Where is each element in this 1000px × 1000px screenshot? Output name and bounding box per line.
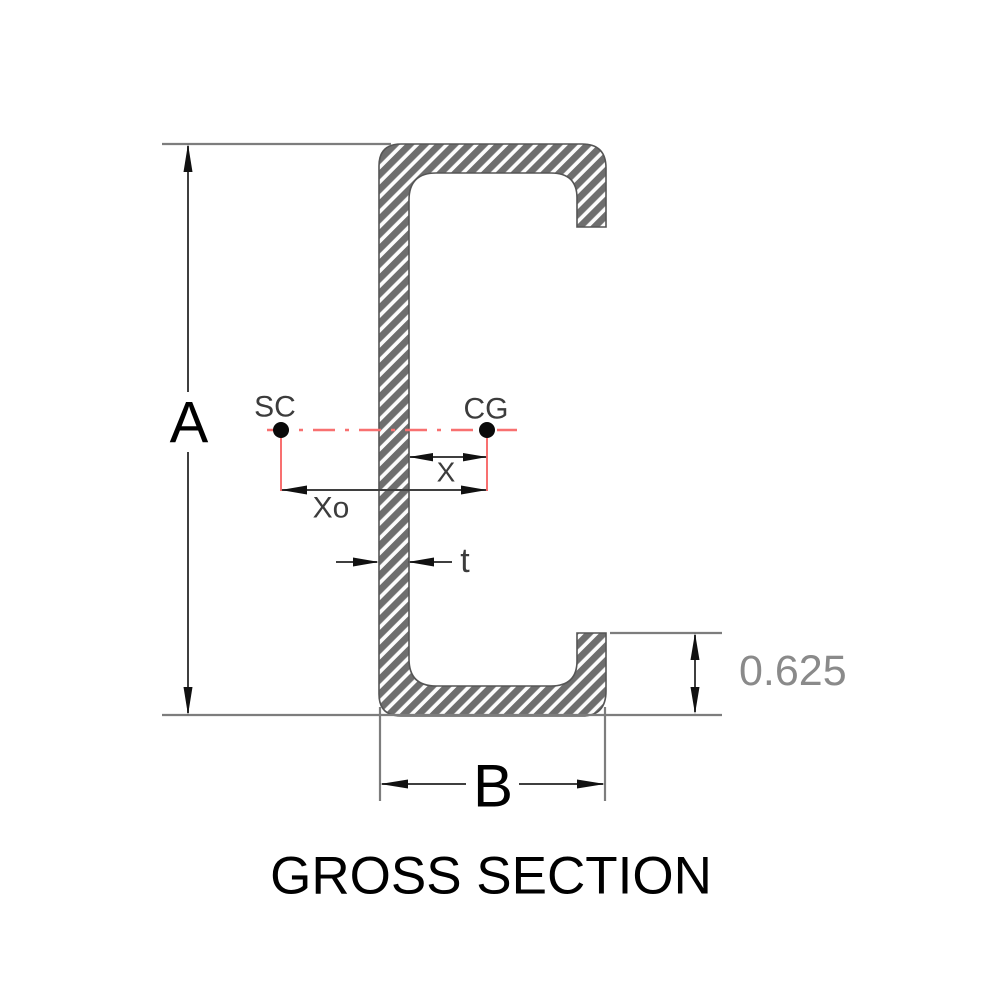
arrowhead-sc-offset-right-icon xyxy=(461,486,487,495)
center-of-gravity-label: CG xyxy=(464,393,509,426)
arrowhead-cg-offset-right-icon xyxy=(463,453,487,461)
arrowhead-lip-top-icon xyxy=(691,633,700,660)
arrowhead-depth-top-icon xyxy=(184,144,193,172)
dim-label-thickness: t xyxy=(460,542,470,580)
arrowhead-depth-bottom-icon xyxy=(184,687,193,715)
dim-label-lip-length: 0.625 xyxy=(739,647,847,695)
shear-center-label: SC xyxy=(254,391,296,424)
arrowhead-sc-offset-left-icon xyxy=(281,486,307,495)
arrowhead-lip-bottom-icon xyxy=(691,687,700,714)
dim-label-cg-offset: X xyxy=(437,457,456,488)
dim-label-sc-offset: Xo xyxy=(313,492,350,525)
arrowhead-width-right-icon xyxy=(577,780,605,789)
gross-section-diagram: A B 0.625 t X Xo SC xyxy=(0,0,1000,1000)
arrowhead-cg-offset-left-icon xyxy=(409,453,433,461)
dim-label-width: B xyxy=(473,753,513,820)
diagram-title: GROSS SECTION xyxy=(270,847,712,906)
arrowhead-thickness-left-icon xyxy=(353,558,379,567)
diagram-canvas: A B 0.625 t X Xo SC xyxy=(0,0,1000,1000)
arrowhead-width-left-icon xyxy=(380,780,408,789)
dim-label-depth: A xyxy=(170,391,209,456)
arrowhead-thickness-right-icon xyxy=(408,558,434,567)
shear-center-dot xyxy=(273,422,289,438)
